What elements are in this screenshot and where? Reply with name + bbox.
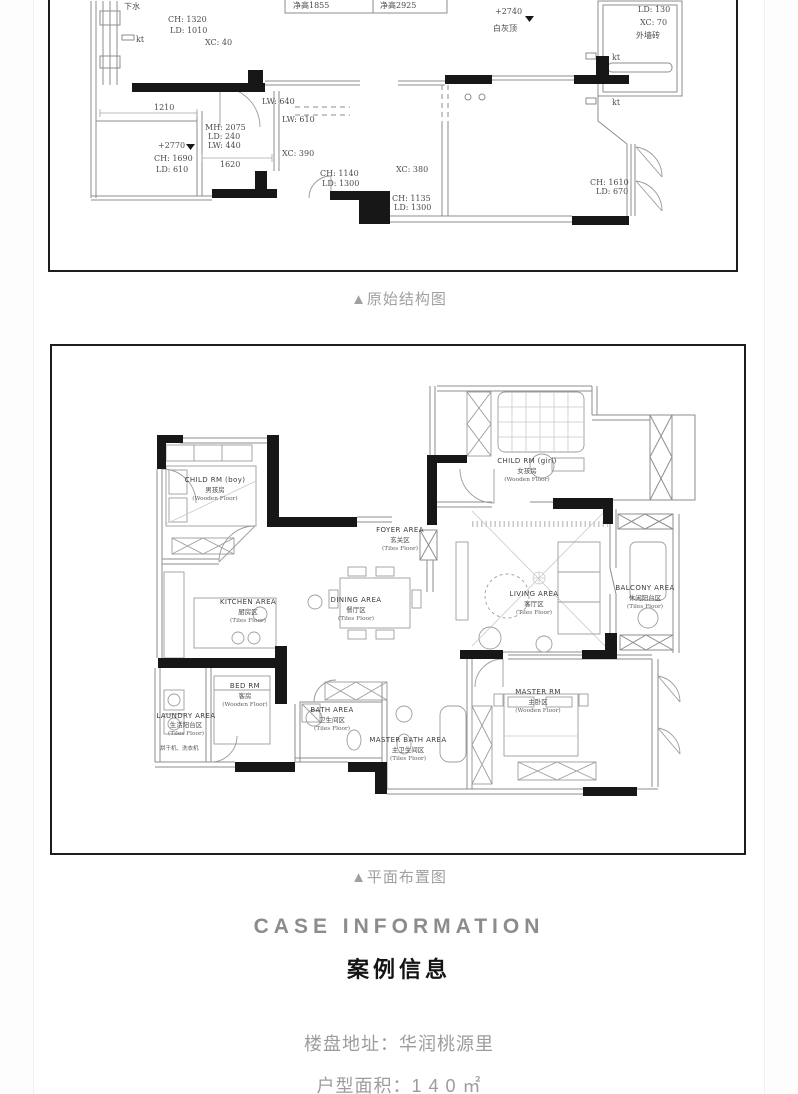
plan1-annotation: CH: 1690 — [154, 154, 193, 163]
laundry-appliance-note: 烘干机、洗衣机 — [160, 744, 199, 752]
plan1-annotation: 外墙砖 — [636, 30, 660, 40]
room-label-kitchen-fl: (Tiles Floor) — [230, 617, 266, 624]
room-label-child-girl: CHILD RM (girl) — [497, 457, 557, 465]
room-label-foyer-fl: (Tiles Floor) — [382, 545, 418, 552]
room-label-master-bath-zh: 主卫生间区 — [392, 745, 425, 754]
room-label-foyer-zh: 玄关区 — [390, 535, 410, 544]
room-label-foyer: FOYER AREA — [376, 526, 424, 534]
layout-floor-plan: CHILD RM (boy) 男孩房 (Wooden Floor) CHILD … — [52, 346, 744, 853]
room-label-living-fl: (Tiles Floor) — [516, 609, 552, 616]
room-label-bedrm: BED RM — [230, 682, 260, 690]
room-label-bath-fl: (Tiles Floor) — [314, 725, 350, 732]
room-label-child-girl-zh: 女孩房 — [517, 466, 537, 475]
room-label-dining-fl: (Tiles Floor) — [338, 615, 374, 622]
plan1-annotation: kt — [612, 98, 621, 107]
room-label-master-bath-fl: (Tiles Floor) — [390, 755, 426, 762]
room-label-kitchen: KITCHEN AREA — [220, 598, 276, 606]
section-title-zh: 案例信息 — [0, 952, 798, 984]
room-label-child-boy-zh: 男孩房 — [205, 485, 225, 494]
room-label-master-fl: (Wooden Floor) — [515, 707, 560, 714]
info-line-address: 楼盘地址：华润桃源里 — [0, 1030, 798, 1056]
plan1-annotation: 白灰顶 — [493, 23, 517, 33]
plan1-annotation: +2770 — [158, 141, 185, 150]
section-title-en: CASE INFORMATION — [0, 915, 798, 939]
plan1-annotation: XC: 70 — [640, 18, 667, 27]
room-label-bath: BATH AREA — [310, 706, 353, 714]
plan1-annotation: 1620 — [220, 160, 240, 169]
room-label-bedrm-zh: 客房 — [239, 691, 252, 700]
plan1-annotation: CH: 1140 — [320, 169, 359, 178]
figure1-caption: ▲原始结构图 — [0, 288, 798, 309]
room-label-balcony-zh: 休闲阳台区 — [629, 593, 662, 602]
plan1-annotation: XC: 40 — [205, 38, 232, 47]
figure2-caption: ▲平面布置图 — [0, 866, 798, 887]
plan1-annotation: MH: 2075 — [205, 123, 246, 132]
plan1-annotation: 1210 — [154, 103, 174, 112]
plan1-annotation: LD: 240 — [208, 132, 240, 141]
info-line-area: 户型面积：1 4 0 ㎡ — [0, 1072, 798, 1094]
plan1-annotations: 下水 CH: 1320 LD: 1010 XC: 40 +2740 白灰顶 LD… — [124, 1, 670, 212]
plan1-annotation: CH: 1320 — [168, 15, 207, 24]
room-label-balcony-fl: (Tiles Floor) — [627, 603, 663, 610]
room-label-living-zh: 客厅区 — [524, 599, 544, 608]
original-structure-figure: 净高1855 净高2925 下水 CH: 1320 LD: 1010 XC: 4… — [48, 0, 738, 272]
room-label-dining-zh: 餐厅区 — [346, 605, 366, 614]
room-label-child-girl-fl: (Wooden Floor) — [504, 476, 549, 483]
plan1-clear-height-box2: 净高2925 — [380, 0, 416, 10]
plan1-annotation: LD: 1010 — [170, 26, 207, 35]
room-label-master: MASTER RM — [515, 688, 561, 696]
room-label-child-boy-fl: (Wooden Floor) — [192, 495, 237, 502]
plan1-annotation: CH: 1135 — [392, 194, 431, 203]
plan1-annotation: XC: 390 — [282, 149, 314, 158]
room-label-master-bath: MASTER BATH AREA — [369, 736, 446, 744]
original-structure-plan: 净高1855 净高2925 下水 CH: 1320 LD: 1010 XC: 4… — [50, 0, 736, 270]
plan1-annotation: LD: 670 — [596, 187, 628, 196]
plan1-annotation: LD: 610 — [156, 165, 188, 174]
room-label-bath-zh: 卫生间区 — [319, 715, 346, 724]
layout-plan-figure: CHILD RM (boy) 男孩房 (Wooden Floor) CHILD … — [50, 344, 746, 855]
room-label-laundry: LAUNDRY AREA — [156, 712, 215, 720]
plan1-annotation: XC: 380 — [396, 165, 428, 174]
plan1-annotation: LD: 1300 — [394, 203, 431, 212]
plan1-annotation: kt — [136, 35, 145, 44]
room-label-child-boy: CHILD RM (boy) — [185, 476, 246, 484]
plan1-annotation: LW: 610 — [282, 115, 315, 124]
plan1-annotation: 下水 — [124, 1, 140, 11]
plan1-annotation: LW: 440 — [208, 141, 241, 150]
room-label-master-zh: 主卧区 — [528, 697, 548, 706]
room-label-laundry-fl: (Tiles Floor) — [168, 730, 204, 737]
plan1-annotation: kt — [612, 53, 621, 62]
article-page: 净高1855 净高2925 下水 CH: 1320 LD: 1010 XC: 4… — [0, 0, 798, 1094]
plan1-clear-height-box1: 净高1855 — [293, 0, 329, 10]
plan1-annotation: LW: 640 — [262, 97, 295, 106]
room-label-living: LIVING AREA — [510, 590, 559, 598]
plan1-annotation: CH: 1610 — [590, 178, 629, 187]
room-label-dining: DINING AREA — [331, 596, 382, 604]
plan1-annotation: +2740 — [495, 7, 522, 16]
plan1-annotation: LD: 1300 — [322, 179, 359, 188]
room-label-laundry-zh: 生活阳台区 — [170, 720, 203, 729]
plan1-annotation: LD: 130 — [638, 5, 670, 14]
room-label-bedrm-fl: (Wooden Floor) — [222, 701, 267, 708]
room-label-balcony: BALCONY AREA — [615, 584, 674, 592]
room-label-kitchen-zh: 厨房区 — [238, 607, 258, 616]
